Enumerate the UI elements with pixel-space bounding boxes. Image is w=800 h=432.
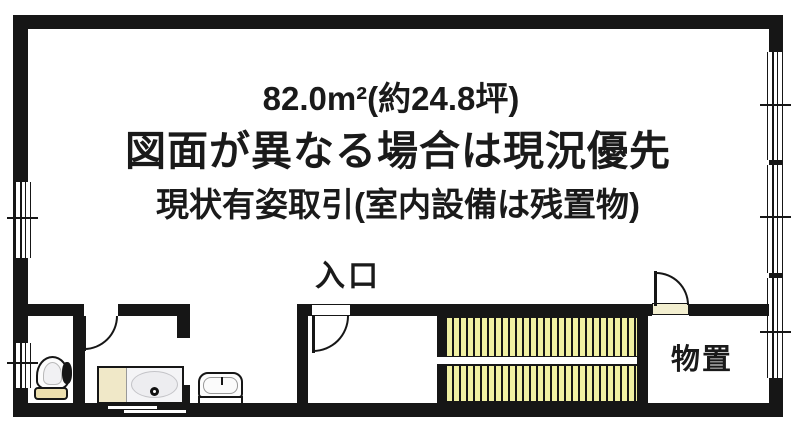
staircase-upper-flight bbox=[445, 316, 637, 358]
area-text: 82.0m²(約24.8坪) bbox=[0, 82, 782, 117]
wall-washroom-left bbox=[28, 304, 84, 316]
toilet-bowl-inner bbox=[43, 362, 62, 385]
staircase-lower-flight bbox=[445, 364, 637, 403]
toilet-flush-unit bbox=[62, 362, 72, 384]
entrance-threshold bbox=[312, 304, 350, 316]
entrance-door-swing-arc bbox=[313, 316, 349, 352]
storage-door-swing-arc bbox=[656, 272, 689, 305]
staircase-landing-divider bbox=[437, 356, 637, 365]
window-pane bbox=[777, 278, 779, 378]
washbasin bbox=[198, 372, 243, 398]
wall-top bbox=[13, 15, 783, 29]
wall-entry-short bbox=[297, 304, 312, 316]
window-tick bbox=[760, 331, 791, 333]
wall-main-horizontal bbox=[350, 304, 652, 316]
floor-plan: 82.0m²(約24.8坪) 図面が異なる場合は現況優先 現状有姿取引(室内設備… bbox=[0, 0, 800, 432]
vanity-drain bbox=[150, 387, 159, 396]
window-pane bbox=[20, 343, 22, 388]
window-tick bbox=[7, 362, 38, 364]
window-right-3 bbox=[767, 278, 783, 378]
wall-stub-upper bbox=[177, 304, 190, 338]
notice-line-3: 現状有姿取引(室内設備は残置物) bbox=[0, 188, 796, 223]
window-pane bbox=[25, 343, 27, 388]
window-pane bbox=[772, 278, 774, 378]
storage-label: 物置 bbox=[642, 345, 762, 375]
wall-storage-top bbox=[689, 304, 769, 316]
bottom-wall-slit-1 bbox=[108, 406, 157, 409]
toilet-door-swing-arc bbox=[84, 316, 118, 350]
vanity-sink bbox=[97, 366, 184, 404]
wall-entry-vertical bbox=[297, 304, 308, 403]
washbasin-faucet bbox=[221, 377, 223, 385]
entrance-label: 入口 bbox=[312, 261, 384, 293]
bottom-wall-slit-2 bbox=[124, 410, 186, 413]
vanity-basin bbox=[127, 368, 182, 402]
window-left-2 bbox=[15, 343, 31, 388]
washbasin-base bbox=[198, 396, 243, 405]
notice-line-2: 図面が異なる場合は現況優先 bbox=[0, 130, 796, 173]
staircase bbox=[437, 316, 648, 403]
vanity-cabinet bbox=[99, 368, 127, 402]
toilet-tank bbox=[34, 387, 68, 400]
